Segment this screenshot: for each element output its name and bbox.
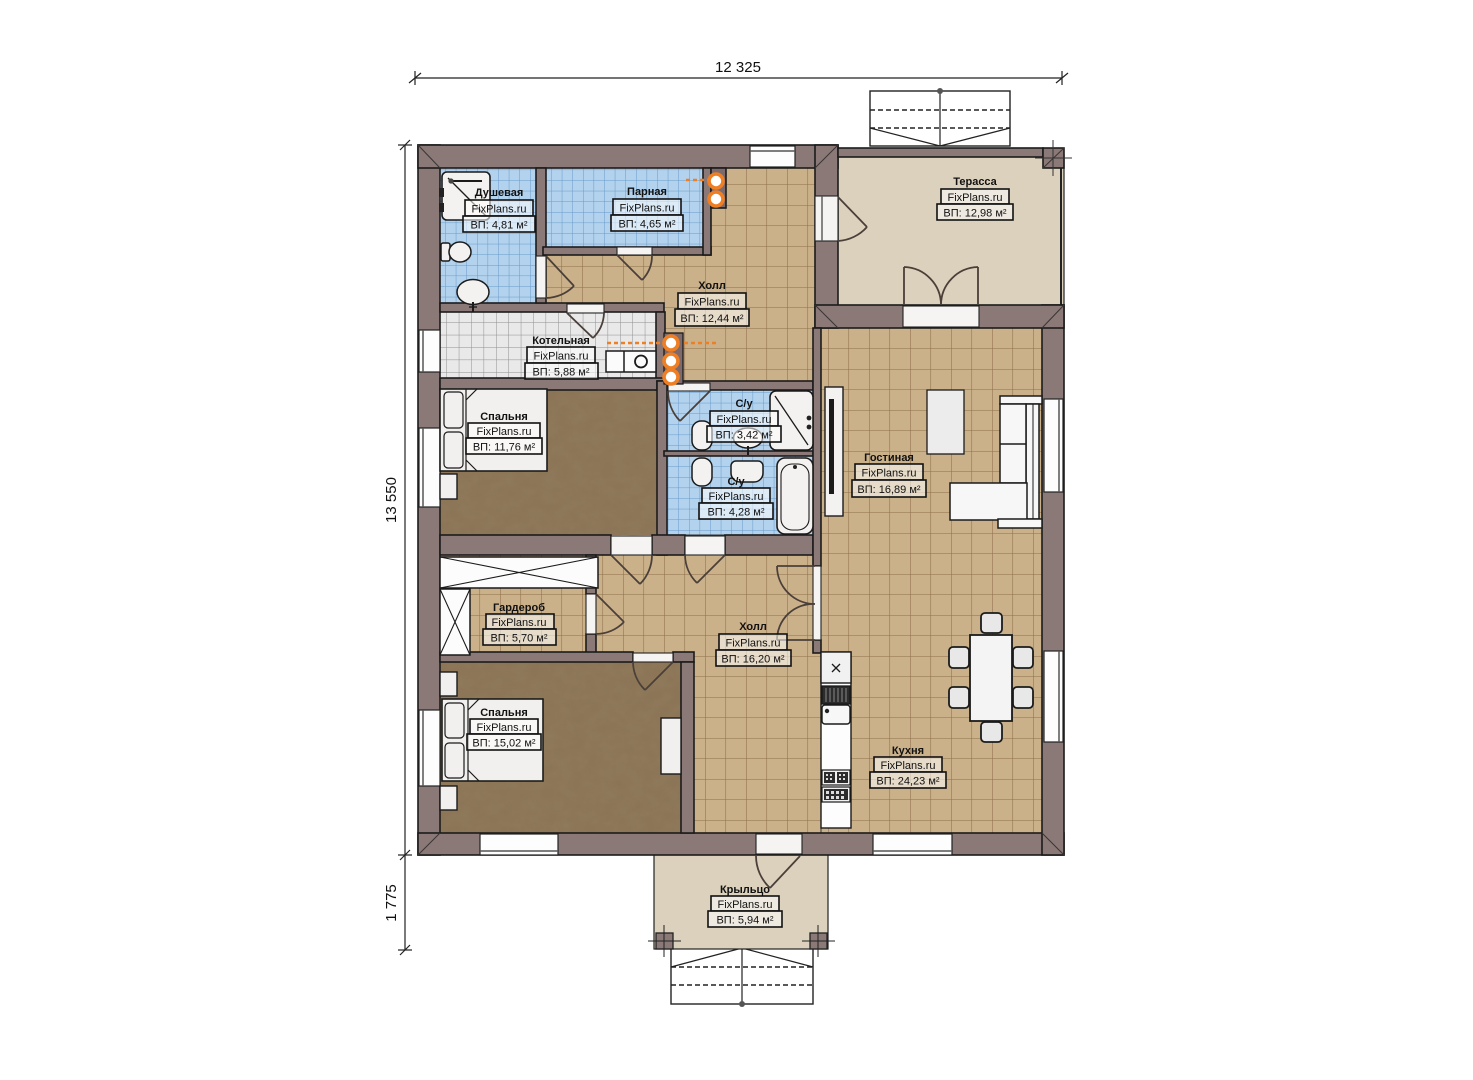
svg-text:ВП: 24,23 м²: ВП: 24,23 м² [876,776,940,788]
svg-text:ВП: 12,44 м²: ВП: 12,44 м² [680,313,744,325]
svg-text:FixPlans.ru: FixPlans.ru [476,426,531,438]
svg-text:Кухня: Кухня [892,745,924,757]
svg-text:С/у: С/у [735,398,753,410]
svg-text:Душевая: Душевая [475,187,524,199]
svg-text:FixPlans.ru: FixPlans.ru [708,491,763,503]
svg-text:FixPlans.ru: FixPlans.ru [717,899,772,911]
svg-text:ВП: 11,76 м²: ВП: 11,76 м² [473,442,536,454]
svg-text:13 550: 13 550 [383,477,400,523]
svg-text:Крыльцо: Крыльцо [720,884,770,896]
svg-text:Парная: Парная [627,186,667,198]
svg-text:ВП: 12,98 м²: ВП: 12,98 м² [943,208,1007,220]
svg-text:Холл: Холл [739,621,767,633]
svg-text:FixPlans.ru: FixPlans.ru [684,297,739,309]
svg-text:ВП: 4,28 м²: ВП: 4,28 м² [707,507,764,519]
svg-text:1 775: 1 775 [383,884,400,922]
svg-text:FixPlans.ru: FixPlans.ru [619,203,674,215]
svg-text:ВП: 4,81 м²: ВП: 4,81 м² [470,220,527,232]
svg-text:ВП: 5,88 м²: ВП: 5,88 м² [532,367,589,379]
svg-text:FixPlans.ru: FixPlans.ru [947,192,1002,204]
svg-text:FixPlans.ru: FixPlans.ru [880,760,935,772]
svg-text:ВП: 16,20 м²: ВП: 16,20 м² [721,654,785,666]
svg-text:FixPlans.ru: FixPlans.ru [716,414,771,426]
svg-text:Гостиная: Гостиная [864,452,914,464]
svg-text:Спальня: Спальня [480,707,528,719]
svg-text:Холл: Холл [698,280,726,292]
svg-text:ВП: 5,94 м²: ВП: 5,94 м² [716,915,773,927]
svg-text:ВП: 16,89 м²: ВП: 16,89 м² [857,484,921,496]
svg-text:Терасса: Терасса [953,176,997,188]
svg-text:FixPlans.ru: FixPlans.ru [725,638,780,650]
svg-text:FixPlans.ru: FixPlans.ru [861,468,916,480]
svg-text:FixPlans.ru: FixPlans.ru [491,617,546,629]
svg-text:12 325: 12 325 [715,59,761,76]
svg-text:FixPlans.ru: FixPlans.ru [471,204,526,216]
svg-text:ВП: 4,65 м²: ВП: 4,65 м² [618,219,675,231]
svg-text:Гардероб: Гардероб [493,602,545,614]
svg-text:Спальня: Спальня [480,411,528,423]
svg-text:Котельная: Котельная [532,335,590,347]
svg-text:ВП: 15,02 м²: ВП: 15,02 м² [472,738,536,750]
svg-text:ВП: 3,42 м²: ВП: 3,42 м² [715,430,772,442]
svg-text:С/у: С/у [727,476,745,488]
svg-text:FixPlans.ru: FixPlans.ru [476,722,531,734]
svg-text:FixPlans.ru: FixPlans.ru [533,351,588,363]
svg-text:ВП: 5,70 м²: ВП: 5,70 м² [490,633,547,645]
